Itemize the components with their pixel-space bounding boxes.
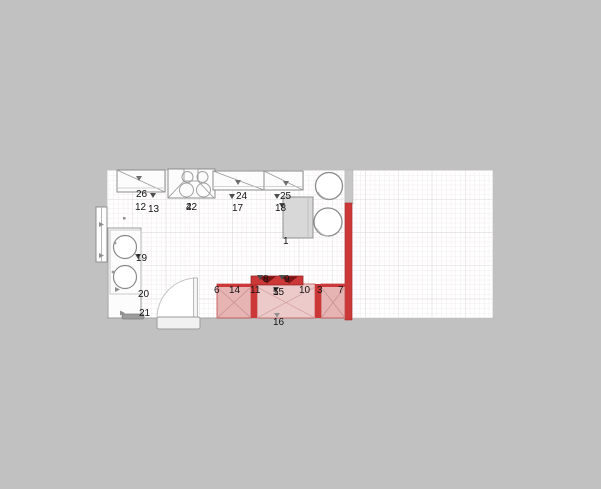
- hinge-dot: [112, 271, 115, 274]
- highlighted-wall-panel-7[interactable]: [345, 203, 352, 320]
- wall-cabinet-25[interactable]: [264, 171, 303, 190]
- wall-cabinet-26[interactable]: [117, 170, 165, 192]
- left-window[interactable]: [96, 207, 107, 262]
- round-fixture-top[interactable]: [316, 173, 343, 200]
- appliance-column[interactable]: [108, 228, 141, 318]
- cabinet-divider: [315, 284, 321, 318]
- round-fixture-bottom[interactable]: [314, 208, 342, 236]
- wall-cabinet-24[interactable]: [213, 171, 264, 190]
- washer-drum-icon: [114, 236, 137, 259]
- cabinet-divider: [251, 284, 257, 318]
- door-threshold: [157, 317, 200, 329]
- dividing-wall: [345, 170, 353, 204]
- tall-cabinet-1[interactable]: [283, 197, 313, 238]
- plan-canvas[interactable]: 26 12 13 4 22 24 17 25 18 1 19 20 21 6 1…: [0, 0, 601, 489]
- plinth-handle: [122, 314, 144, 319]
- adjacent-room-floor: [352, 170, 493, 318]
- floorplan-drawing: [0, 0, 601, 489]
- hinge-dot: [114, 242, 117, 245]
- washer-drum-icon: [114, 266, 137, 289]
- cooktop-hood[interactable]: [168, 169, 215, 198]
- base-cabinet-run-highlighted[interactable]: [217, 284, 345, 318]
